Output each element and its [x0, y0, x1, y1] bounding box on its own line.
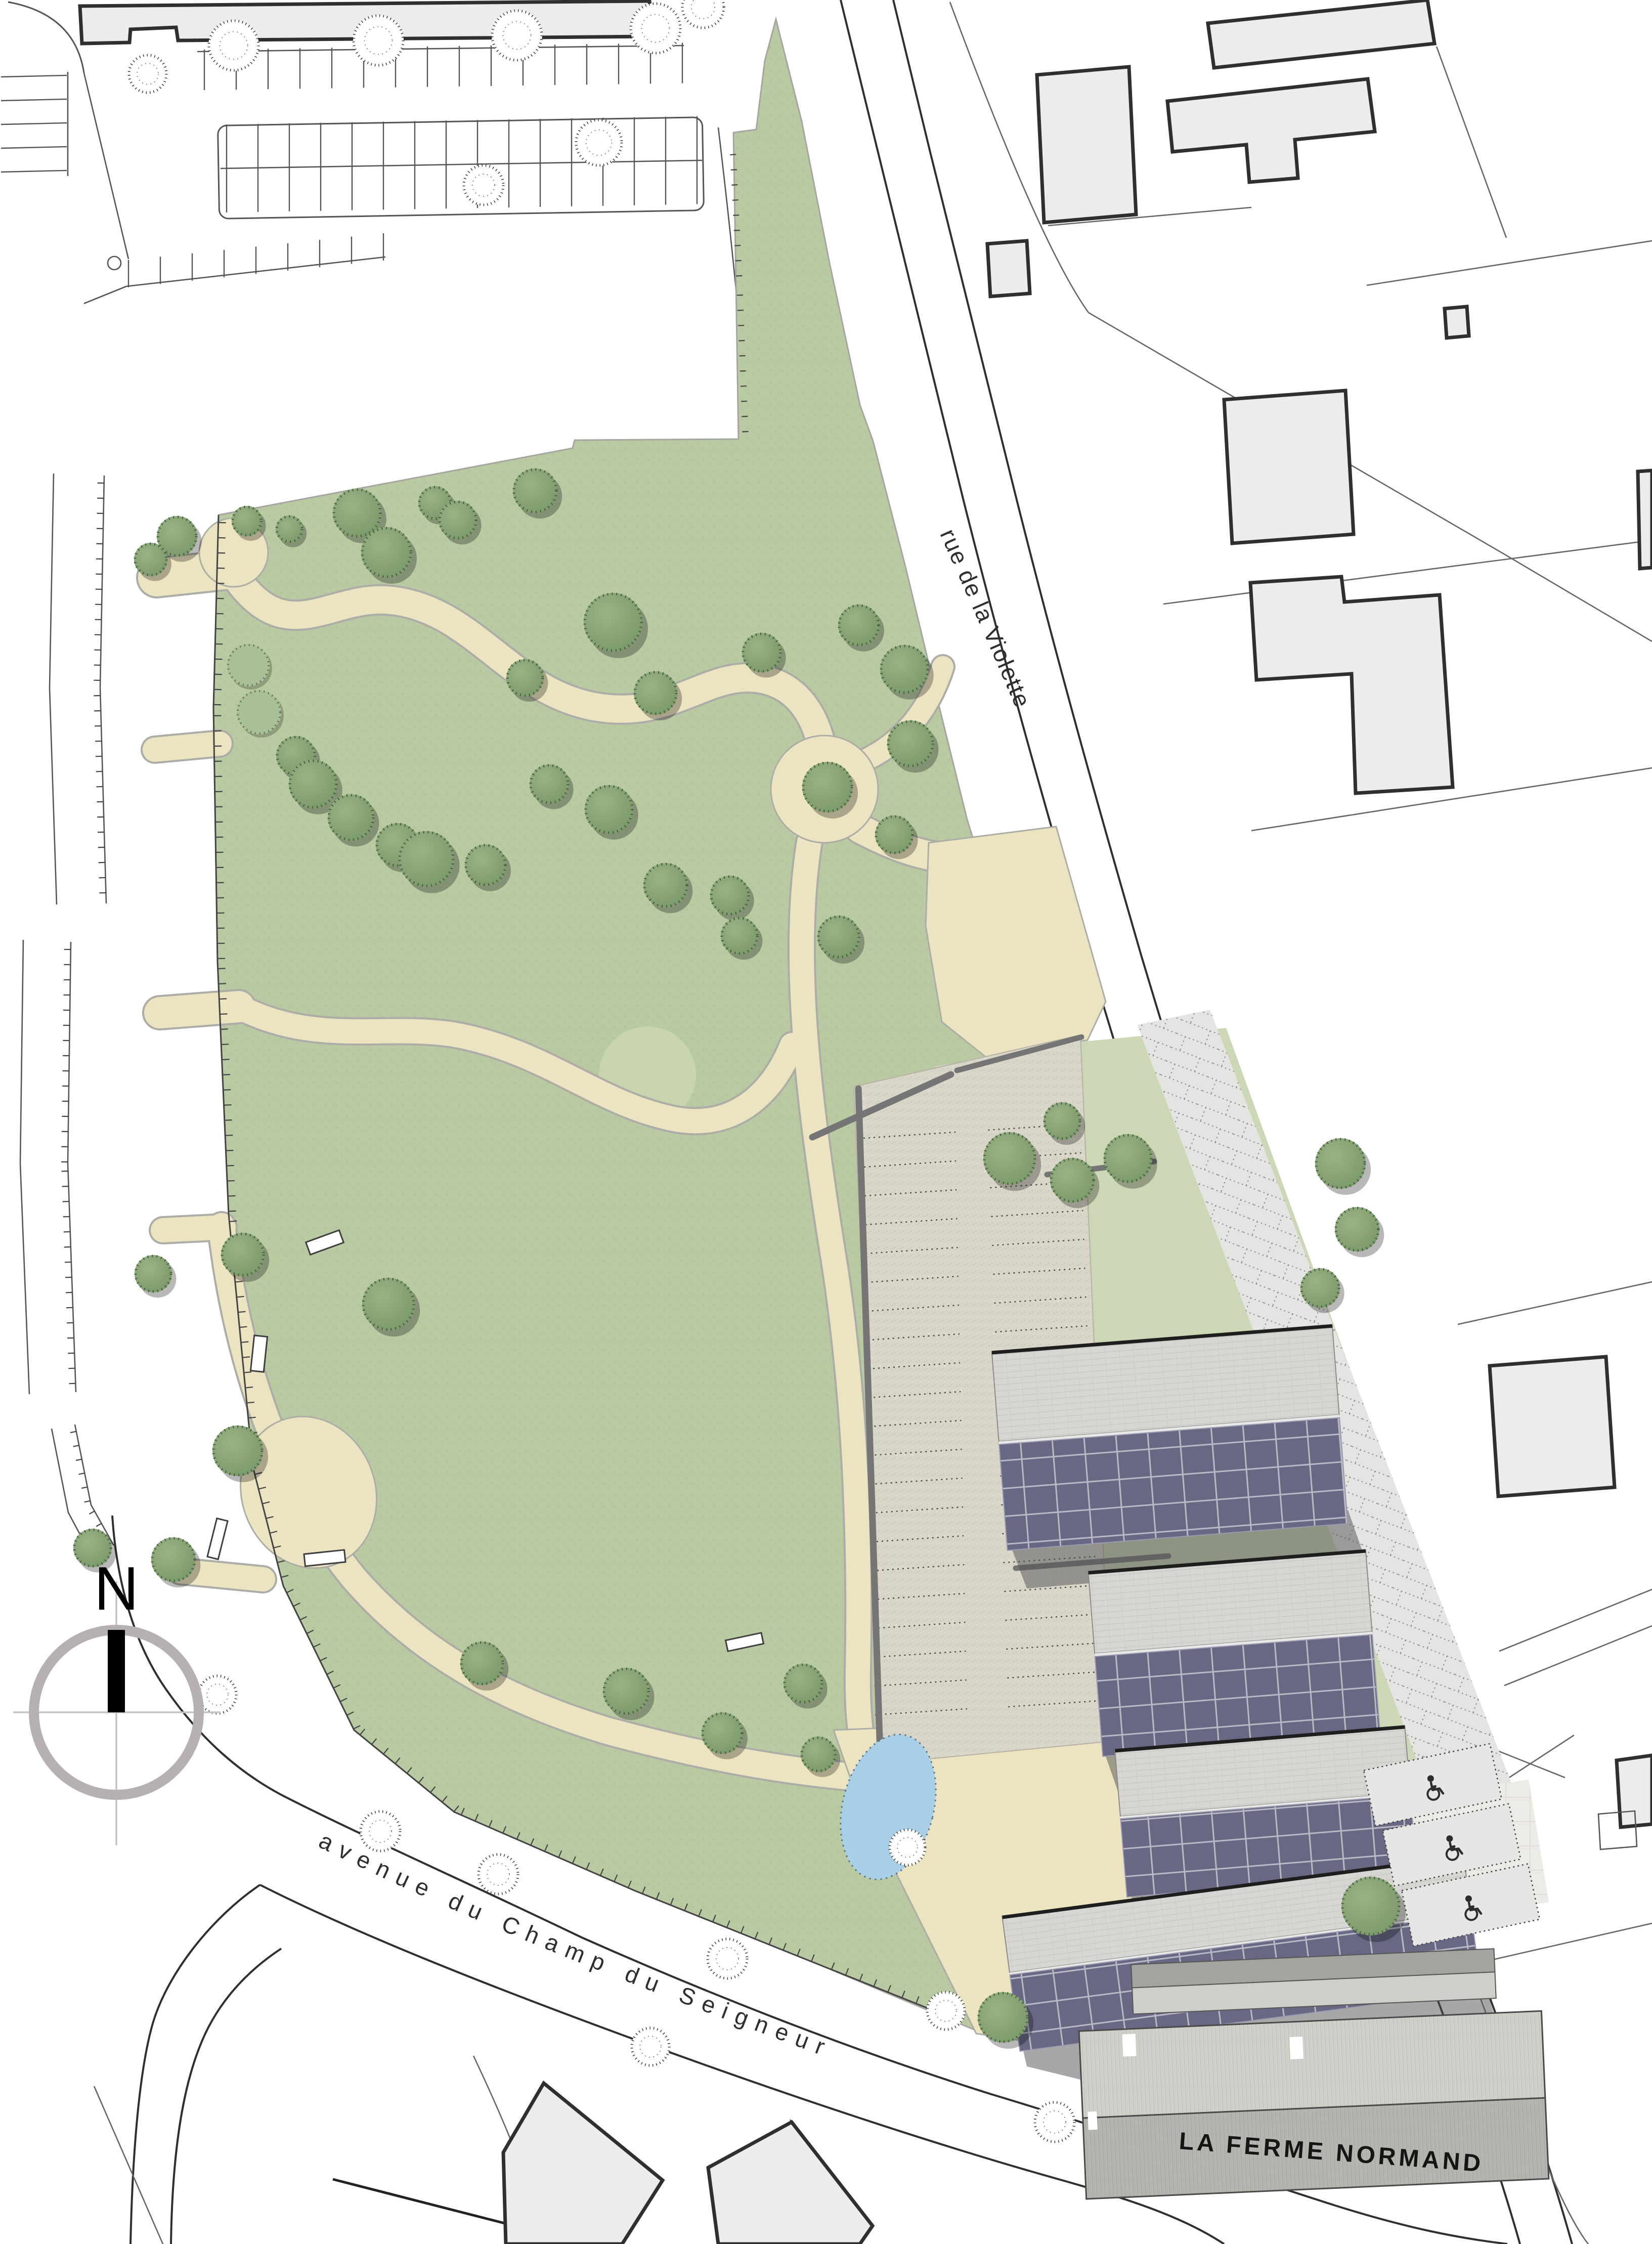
context-building: [1490, 1357, 1615, 1496]
context-building: [1208, 0, 1434, 68]
context-building: [1167, 79, 1375, 182]
street-tree: [631, 2027, 670, 2066]
context-building: [987, 241, 1030, 296]
street-tree: [353, 15, 404, 66]
context-building: [1445, 307, 1469, 338]
street-tree: [576, 119, 622, 166]
site-plan-canvas: rue de la Violette avenue du Champ du Se…: [0, 0, 1652, 2244]
development: [812, 1010, 1549, 2199]
south-context-buildings: [503, 2083, 873, 2244]
context-building: [1037, 67, 1136, 223]
street-tree: [360, 1811, 401, 1851]
site-plan: rue de la Violette avenue du Champ du Se…: [0, 0, 1652, 2244]
street-tree: [707, 1938, 748, 1979]
bench: [207, 1518, 228, 1559]
street-tree: [927, 1992, 965, 2030]
street-tree: [478, 1854, 518, 1894]
rowhouse-1: [992, 1325, 1348, 1550]
compass-north-letter: N: [94, 1554, 139, 1623]
context-building: [1617, 1755, 1652, 1827]
street-tree: [208, 20, 259, 71]
street-tree: [128, 55, 167, 93]
context-building: [1224, 391, 1354, 543]
junction-east-curb: [171, 1949, 281, 2244]
street-tree: [463, 165, 504, 205]
park-tree: [1315, 1138, 1371, 1195]
rowhouse-2: [1088, 1550, 1380, 1756]
street-name-rue-violette: rue de la Violette: [935, 525, 1036, 712]
junction-west-curb: [131, 1885, 260, 2244]
street-tree: [1034, 2102, 1075, 2142]
park-tree: [1335, 1207, 1384, 1257]
bench: [250, 1335, 267, 1372]
entry-plaza: [926, 827, 1106, 1058]
street-tree: [889, 1829, 926, 1866]
street-tree: [682, 0, 724, 28]
north-context: [1, 1, 749, 439]
context-building: [1638, 470, 1652, 569]
north-arrow-icon: N: [13, 1554, 221, 1845]
street-tree: [630, 3, 681, 54]
context-building: [1250, 577, 1453, 793]
street-tree: [198, 1675, 237, 1714]
north-needle: [108, 1630, 125, 1712]
park-tree: [151, 1537, 200, 1587]
park-tree: [135, 1255, 176, 1298]
street-tree: [492, 10, 542, 61]
